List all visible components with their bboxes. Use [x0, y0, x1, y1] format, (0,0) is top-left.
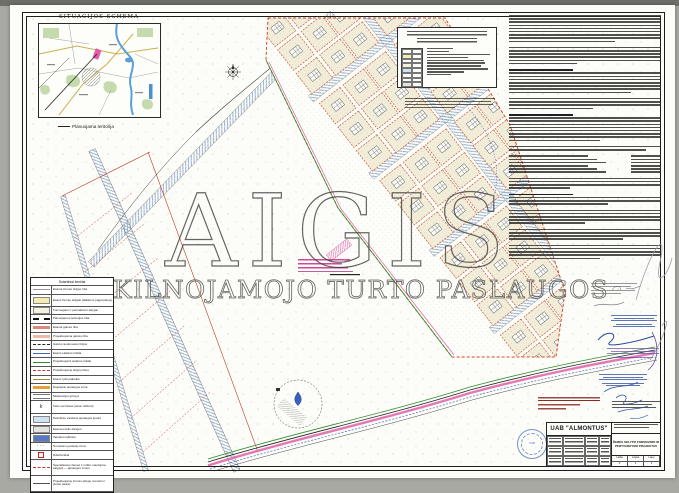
signatures-overlay [0, 0, 679, 480]
scanned-plan-sheet: AIGIS NEKILNOJAMOJO TURTO PASLAUGOS SITU… [0, 0, 679, 480]
